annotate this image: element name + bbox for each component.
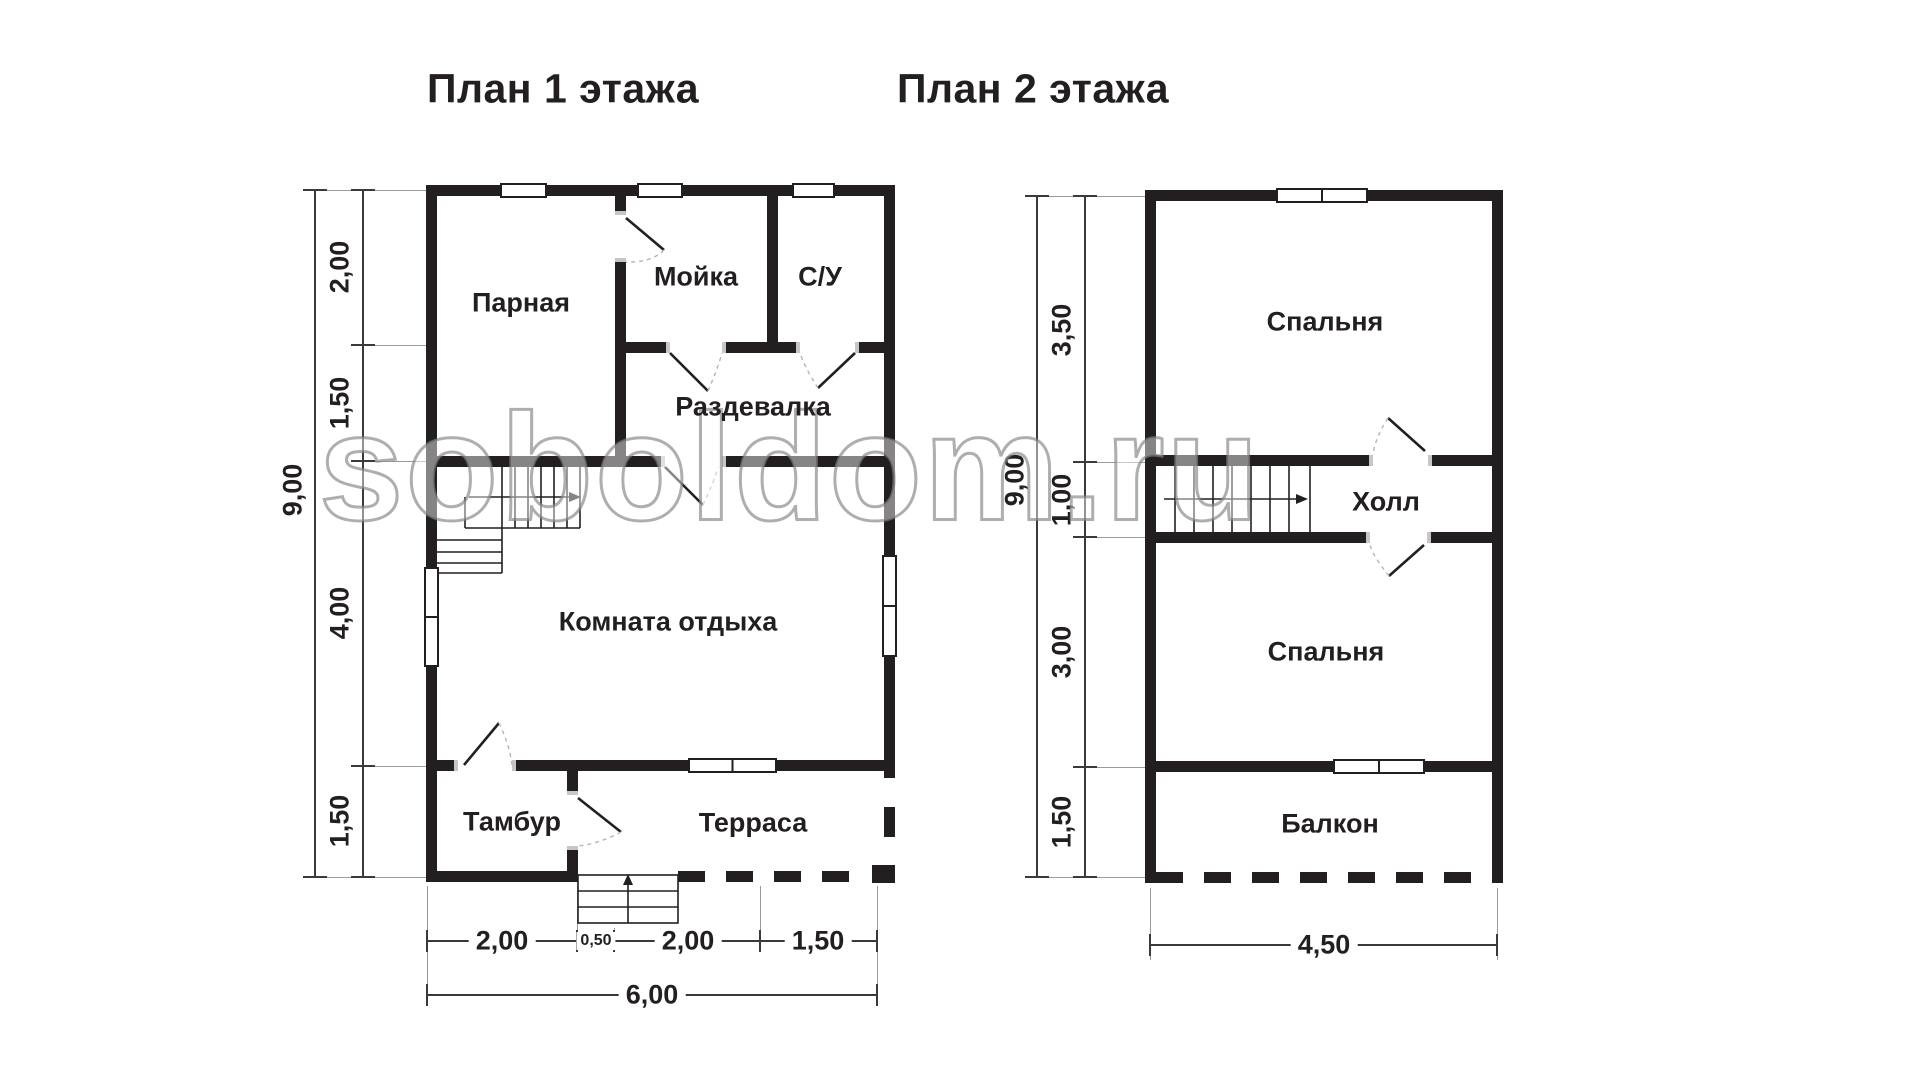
- door-bedroom1-hall: [1366, 410, 1436, 462]
- room-label-komnata: Комната отдыха: [559, 607, 778, 638]
- room-label-terrasa: Терраса: [699, 808, 808, 839]
- f1-porch-steps: [576, 871, 680, 927]
- room-label-moyka: Мойка: [654, 262, 738, 293]
- door-hall-bedroom2: [1364, 538, 1434, 586]
- dim-tick: [426, 984, 428, 1006]
- f1-wall-su-left: [767, 196, 778, 353]
- f1-dim-line-left-outer: [314, 190, 316, 878]
- f1-window-top-3: [792, 183, 835, 198]
- f2-wall-hall-bottom-b: [1427, 532, 1492, 543]
- dim-tick: [876, 984, 878, 1006]
- f2-wall-bedroom2-bottom-b: [1425, 761, 1492, 772]
- dim-tick: [351, 189, 375, 191]
- f1-dim-bottom-2: 0,50: [576, 932, 615, 950]
- door-tambur-komnata: [454, 714, 518, 770]
- dim-tick: [1025, 876, 1049, 878]
- f2-wall-bedroom2-bottom-a: [1156, 761, 1333, 772]
- room-label-bedroom-top: Спальня: [1267, 307, 1384, 338]
- dim-tick: [876, 930, 878, 952]
- dim-tick: [1073, 766, 1097, 768]
- room-label-balkon: Балкон: [1281, 809, 1379, 840]
- f1-window-top-2: [637, 183, 683, 198]
- dim-tick: [1073, 195, 1097, 197]
- dim-tick: [303, 876, 327, 878]
- room-label-hall: Холл: [1352, 487, 1420, 518]
- floor1-title: План 1 этажа: [427, 66, 699, 113]
- door-parnaya-moyka: [613, 210, 688, 268]
- dim-tick: [303, 189, 327, 191]
- room-label-tambur: Тамбур: [463, 807, 561, 838]
- f1-window-terrace: [688, 758, 777, 773]
- f2-wall-bedroom1-bottom-b: [1428, 455, 1492, 466]
- f1-dim-left-total: 9,00: [278, 464, 309, 517]
- f1-terrace-dash-right: [884, 807, 895, 837]
- f1-wall-bottom: [426, 871, 578, 882]
- f1-window-left: [424, 567, 439, 667]
- dim-tick: [1073, 876, 1097, 878]
- door-tambur-terrasa: [568, 788, 630, 852]
- dim-tick: [759, 930, 761, 952]
- f1-wall-komnata-bottom-b: [512, 760, 688, 771]
- f1-dim-left-1: 2,00: [325, 241, 356, 294]
- f2-window-balcony: [1333, 759, 1425, 774]
- dim-tick: [1025, 195, 1049, 197]
- f2-dim-left-1: 3,50: [1047, 304, 1078, 357]
- f1-terrace-corner-post: [872, 865, 895, 883]
- f1-dim-left-3: 4,00: [325, 587, 356, 640]
- floor2-title: План 2 этажа: [897, 66, 1169, 113]
- f1-dim-bottom-3: 2,00: [655, 926, 722, 957]
- f2-balcony-dashed-edge: [1156, 872, 1492, 883]
- dim-tick: [1496, 934, 1498, 956]
- f1-dim-left-4: 1,50: [325, 795, 356, 848]
- room-label-su: С/У: [798, 262, 842, 293]
- f2-window-top: [1276, 188, 1368, 203]
- dim-tick: [351, 765, 375, 767]
- room-label-bedroom-bottom: Спальня: [1268, 637, 1385, 668]
- f2-wall-right: [1492, 201, 1503, 883]
- dim-tick: [351, 876, 375, 878]
- room-label-parnaya: Парная: [472, 288, 570, 319]
- dim-tick: [1149, 934, 1151, 956]
- f2-dim-bottom-total: 4,50: [1291, 930, 1358, 961]
- f1-window-top-1: [500, 183, 547, 198]
- dim-tick: [351, 344, 375, 346]
- f2-dim-left-4: 1,50: [1047, 796, 1078, 849]
- f1-dim-bottom-4: 1,50: [785, 926, 852, 957]
- f1-terrace-dashed-edge: [678, 871, 862, 882]
- floor-plan-canvas: План 1 этажа План 2 этажа: [0, 0, 1920, 1080]
- f1-dim-bottom-total: 6,00: [619, 980, 686, 1011]
- f1-wall-komnata-bottom-c: [777, 760, 884, 771]
- f2-dim-left-3: 3,00: [1047, 626, 1078, 679]
- f1-dim-bottom-1: 2,00: [469, 926, 536, 957]
- f1-window-right: [882, 555, 897, 657]
- f1-wall-moyka-bottom-b: [722, 342, 800, 353]
- dim-tick: [426, 930, 428, 952]
- room-label-razdevalka: Раздевалка: [675, 392, 831, 423]
